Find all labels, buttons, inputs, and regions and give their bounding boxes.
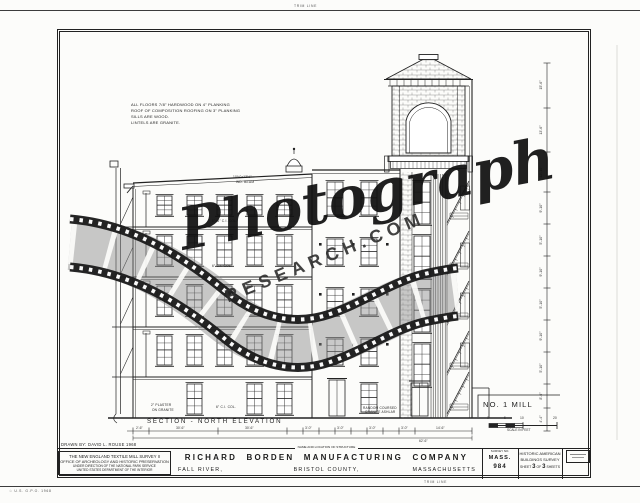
structure-state: MASSACHUSETTS [171, 468, 476, 473]
plaster-annotation: ON GRANITE [152, 409, 174, 412]
dimension: 5'-10" [540, 363, 544, 372]
note-line: LINTELS ARE GRANITE. [131, 121, 180, 125]
beam-annotation: 10½"x13½" [233, 176, 252, 179]
habs-sheet-line: SHEET 3 OF 3 SHEETS [518, 464, 562, 470]
scale-tick: 5 [504, 417, 506, 420]
scanned-habs-sheet: TRIM LINE TRIM LINE ☆ U.S. G.P.O. 1968 A… [0, 0, 640, 503]
dimension: 30'-6" [176, 427, 185, 430]
column-annotation: 6" C.I. COL. [212, 265, 232, 268]
sheet-number: 3 [532, 464, 535, 470]
agency-line: UNITED STATES DEPARTMENT OF THE INTERIOR [77, 468, 153, 472]
dimension: 3'-0" [305, 427, 312, 430]
cell-divider [562, 448, 563, 479]
dimension: 8'-6" [540, 392, 544, 399]
sheet-word: SHEET [520, 465, 531, 469]
sheet-total: 3 [542, 464, 545, 470]
dimension: 4'-4" [540, 415, 544, 422]
plaster-annotation: 2" PLASTER [151, 404, 171, 407]
scale-tick: 20 [553, 417, 557, 420]
agency-cell: THE NEW ENGLAND TEXTILE MILL SURVEY II O… [58, 451, 171, 475]
dimension: 9'-10" [540, 331, 544, 340]
scale-caption: SCALE IN FEET [507, 429, 531, 432]
habs-line: BUILDINGS SURVEY [518, 458, 562, 462]
dimension-total: 62'-6" [419, 440, 428, 443]
dimension: 5'-10" [540, 235, 544, 244]
mill-label: NO. 1 MILL [483, 401, 533, 409]
note-line: ALL FLOORS 7/8" HARDWOOD ON 4" PLANKING [131, 103, 230, 107]
dimension: 9'-10" [540, 267, 544, 276]
survey-number: 984 [482, 464, 518, 470]
column-annotation: 6" C.I. COL. [216, 406, 236, 409]
survey-state: MASS. [482, 456, 518, 462]
dimension: 3'-0" [401, 427, 408, 430]
drawn-by: DRAWN BY: DAVID L. ROUSE 1968 [61, 443, 136, 447]
name-header-text: NAME AND LOCATION OF STRUCTURE [295, 445, 359, 449]
stamp-hairline [572, 457, 584, 458]
note-line: ROOF OF COMPOSITION ROOFING ON 3" PLANKI… [131, 109, 240, 113]
scale-tick: 0 [487, 417, 489, 420]
name-header: NAME AND LOCATION OF STRUCTURE [171, 446, 482, 449]
survey-header: SURVEY NO. [482, 450, 518, 453]
habs-line: HISTORIC AMERICAN [518, 452, 562, 456]
note-line: SILLS ARE WOOD. [131, 115, 169, 119]
stamp-hairline [570, 454, 586, 455]
dimension: 2'-6" [136, 427, 143, 430]
dimension: 15'-6" [540, 80, 544, 89]
dimension: 30'-6" [245, 427, 254, 430]
dimension: 5'-10" [540, 299, 544, 308]
stamp-box [566, 450, 590, 463]
dimension: 3'-0" [369, 427, 376, 430]
ashlar-annotation: GRANITE ASHLAR [365, 411, 395, 414]
scale-tick: 10 [520, 417, 524, 420]
sheets-word: SHEETS [546, 465, 560, 469]
structure-name: RICHARD BORDEN MANUFACTURING COMPANY [171, 454, 482, 462]
section-title: SECTION - NORTH ELEVATION [147, 419, 282, 425]
of-word: OF [536, 465, 541, 469]
dimension: 14'-6" [436, 427, 445, 430]
dimension: 9'-10" [540, 203, 544, 212]
dimension: 3'-0" [337, 427, 344, 430]
